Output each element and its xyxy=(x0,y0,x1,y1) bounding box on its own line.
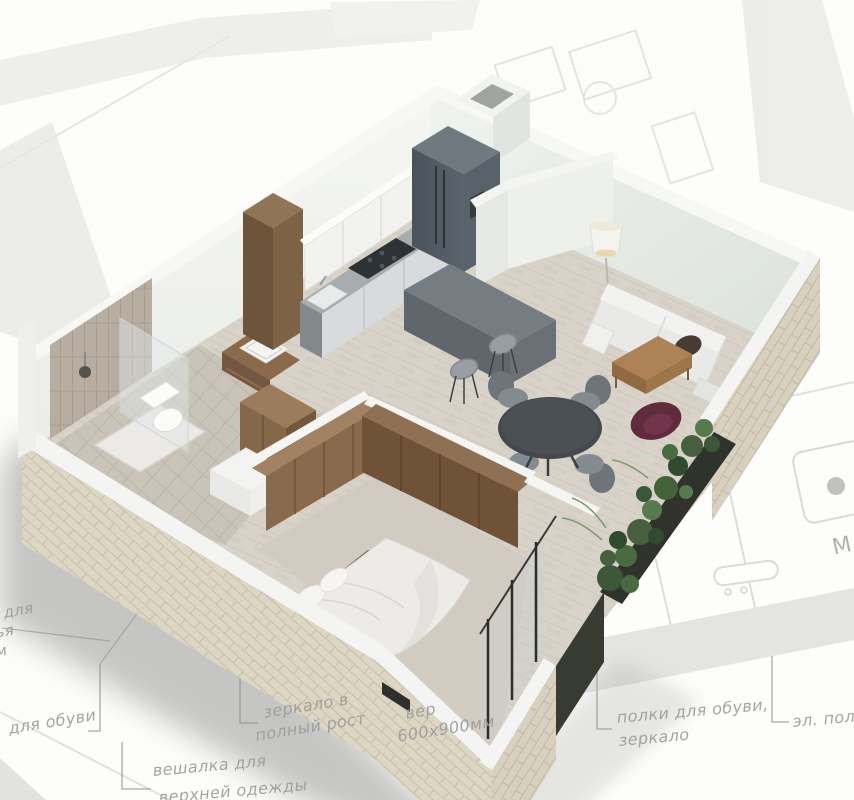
tall-cabinet xyxy=(243,193,303,350)
corner-post xyxy=(18,320,36,458)
apartment-render xyxy=(0,0,854,800)
shower-head xyxy=(79,366,91,378)
screenshot-root: для ья м для обуви вешалка для верхней о… xyxy=(0,0,854,800)
